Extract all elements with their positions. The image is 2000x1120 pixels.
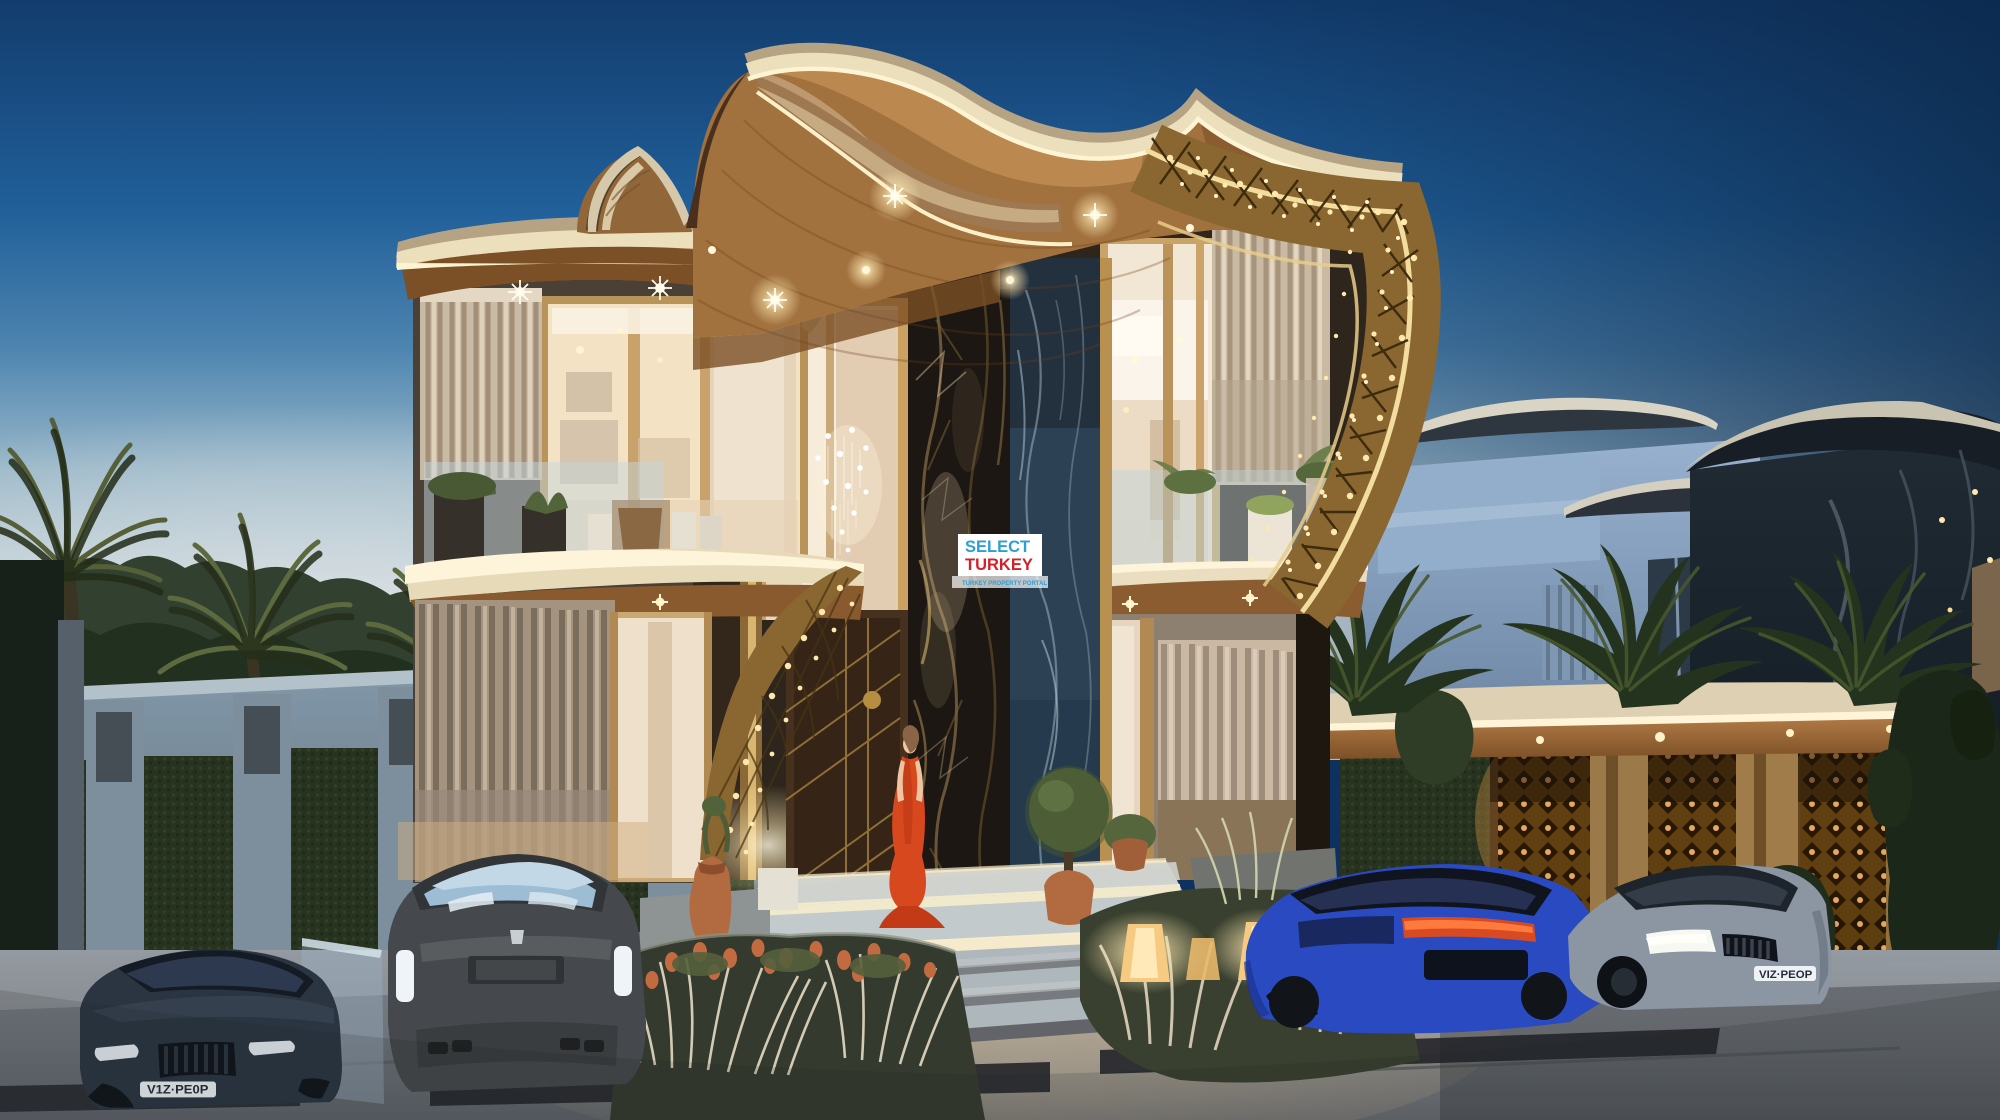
svg-text:TURKEY PROPERTY PORTAL: TURKEY PROPERTY PORTAL xyxy=(962,581,1047,587)
svg-text:TURKEY: TURKEY xyxy=(965,556,1033,574)
svg-text:VIZ·PEOP: VIZ·PEOP xyxy=(1759,969,1813,981)
svg-text:SELECT: SELECT xyxy=(965,538,1030,556)
